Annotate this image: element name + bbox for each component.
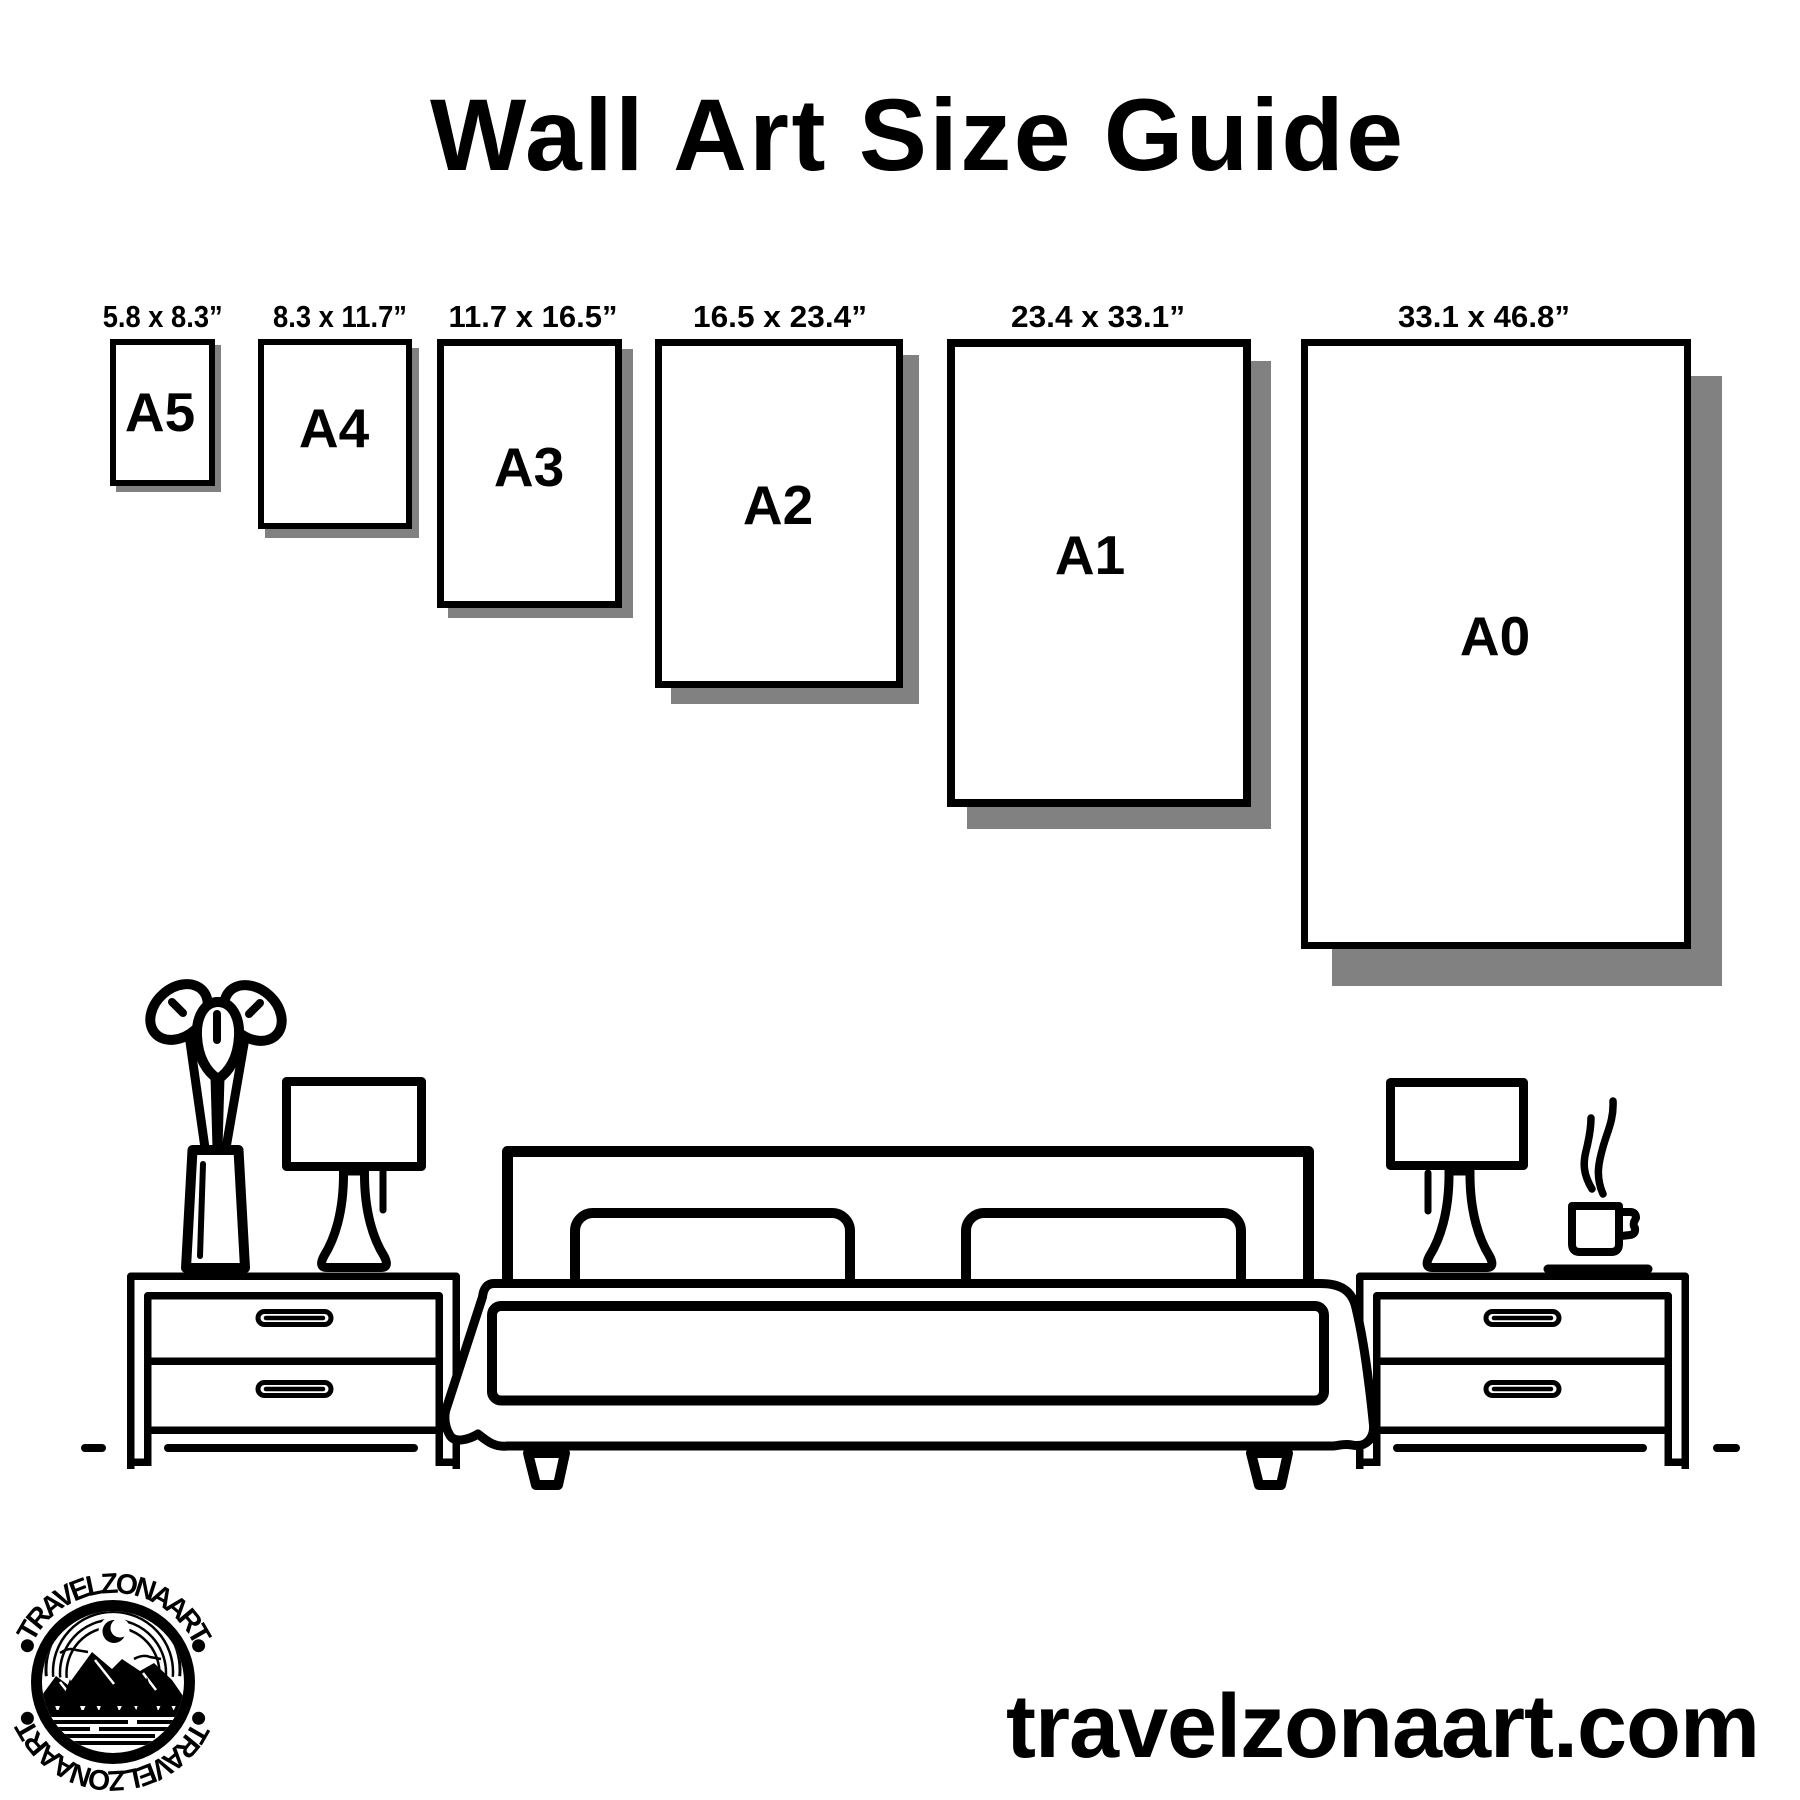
svg-text:A4: A4 bbox=[299, 397, 370, 459]
svg-text:Wall Art Size Guide: Wall Art Size Guide bbox=[430, 78, 1403, 192]
svg-text:23.4 x 33.1”: 23.4 x 33.1” bbox=[1011, 299, 1185, 334]
svg-text:travelzonaart.com: travelzonaart.com bbox=[1006, 1677, 1760, 1777]
svg-text:16.5 x 23.4”: 16.5 x 23.4” bbox=[693, 299, 867, 334]
svg-text:A1: A1 bbox=[1055, 524, 1125, 586]
svg-text:33.1 x 46.8”: 33.1 x 46.8” bbox=[1398, 299, 1570, 334]
svg-text:11.7 x 16.5”: 11.7 x 16.5” bbox=[449, 299, 618, 334]
svg-text:A0: A0 bbox=[1460, 605, 1530, 667]
svg-text:A3: A3 bbox=[494, 436, 564, 498]
svg-text:5.8 x 8.3”: 5.8 x 8.3” bbox=[103, 299, 223, 334]
svg-text:A2: A2 bbox=[743, 474, 813, 536]
svg-text:A5: A5 bbox=[125, 381, 195, 443]
svg-text:8.3 x 11.7”: 8.3 x 11.7” bbox=[273, 299, 407, 334]
